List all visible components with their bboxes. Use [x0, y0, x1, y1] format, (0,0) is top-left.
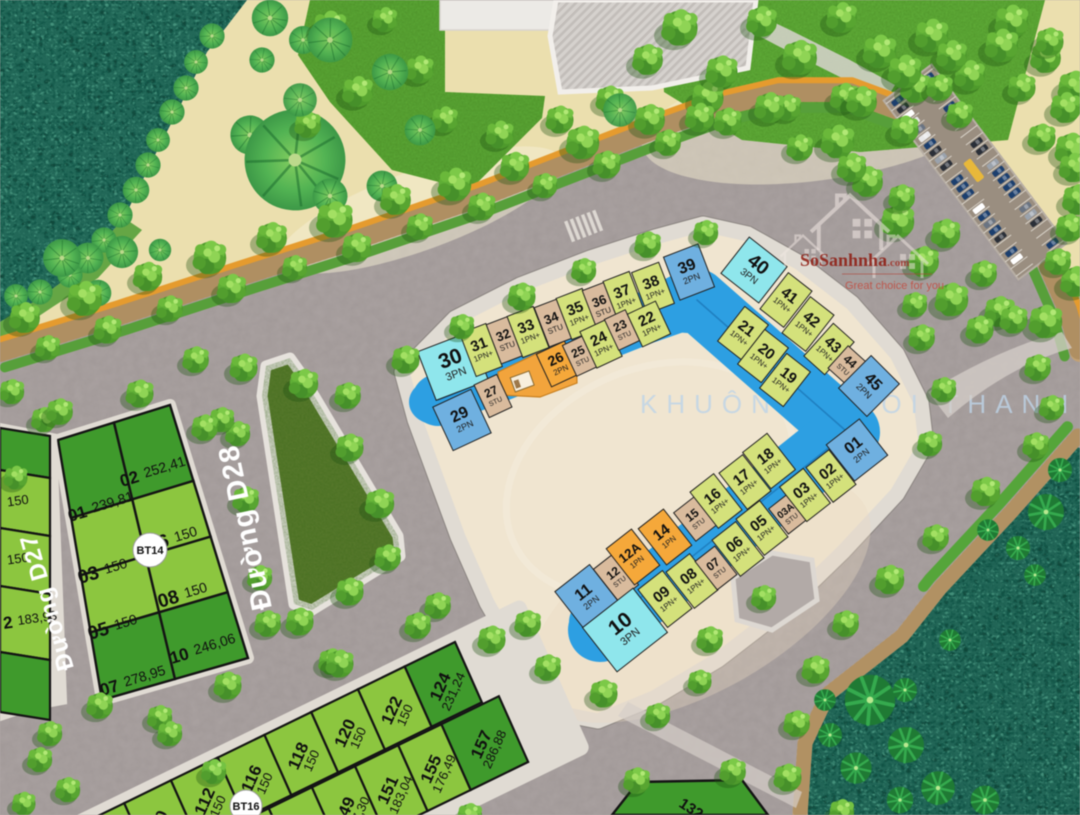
svg-text:BT14: BT14	[137, 545, 165, 557]
svg-text:150: 150	[6, 492, 30, 510]
svg-text:Great choice for you: Great choice for you	[845, 280, 944, 292]
svg-text:BT16: BT16	[233, 801, 260, 813]
